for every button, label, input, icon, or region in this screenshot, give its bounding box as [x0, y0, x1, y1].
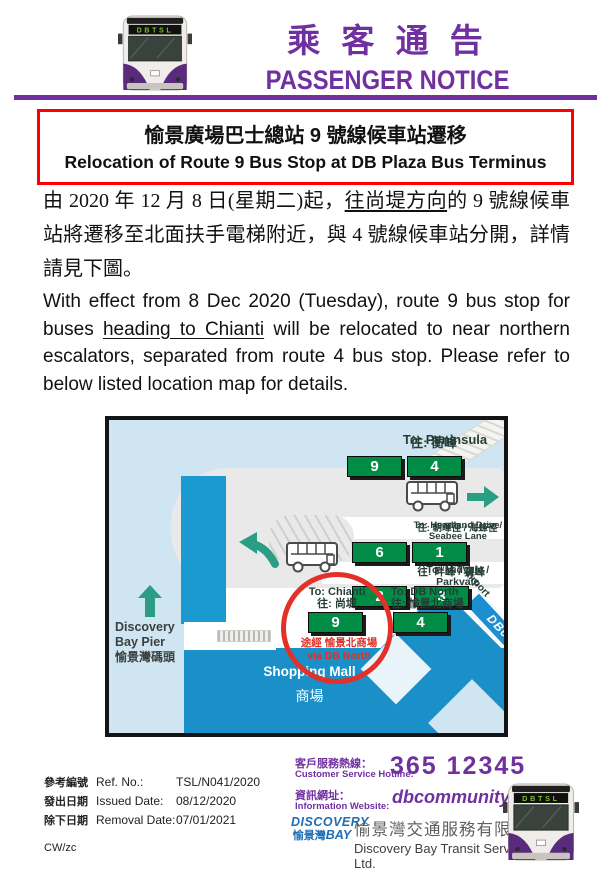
passenger-notice-page: DBTSL 乘 客 通 告 PASSENGER NOTICE 愉景廣場巴士總站 …: [0, 0, 611, 873]
bus-destination-text: DBTSL: [137, 28, 174, 35]
stop-label-cjk: 往: 愉景北商場: [391, 598, 496, 610]
route-badge-9: 9: [347, 456, 402, 477]
stop-label-cjk: 往: 朝暉徑 / 海蜂徑: [417, 520, 497, 534]
subject-box: 愉景廣場巴士總站 9 號線候車站遷移 Relocation of Route 9…: [37, 109, 574, 185]
stop-label-cjk: 往: 畔峰 / 寶峰: [417, 564, 485, 579]
removal-row: 除下日期 Removal Date: 07/01/2021: [44, 812, 294, 831]
purple-divider: [14, 95, 597, 100]
notice-title-cjk: 乘 客 通 告: [248, 14, 528, 62]
ref-label-cjk: 參考編號: [44, 774, 96, 790]
pier-line2: Bay Pier: [115, 635, 201, 650]
route-badge-4-dbnorth: 4: [393, 612, 448, 633]
cjk-text-pre: 由 2020 年 12 月 8 日(星期二)起，: [43, 190, 345, 212]
pier-arrow-up-icon: [137, 584, 163, 618]
via-db-north-note: 途經 愉景北商場 via DB North: [281, 637, 397, 663]
bus-side-icon: [285, 540, 341, 574]
logo-bay-text: BAY: [326, 828, 351, 842]
header-titles: 乘 客 通 告 PASSENGER NOTICE: [248, 14, 528, 96]
website-label-en: Information Website:: [295, 801, 389, 812]
issued-row: 發出日期 Issued Date: 08/12/2020: [44, 793, 294, 812]
issued-label-cjk: 發出日期: [44, 793, 96, 809]
note-cjk: 途經 愉景北商場: [281, 637, 397, 650]
stop-label-db-north: To: DB North 往: 愉景北商場: [391, 586, 496, 610]
map-pier-building: [181, 476, 226, 624]
issued-value: 08/12/2020: [176, 794, 236, 808]
highlight-circle: [281, 572, 393, 684]
bus-front-photo: DBTSL: [118, 12, 192, 94]
route-badge-1: 1: [412, 542, 467, 563]
subject-cjk: 愉景廣場巴士總站 9 號線候車站遷移: [44, 119, 567, 148]
issued-label-en: Issued Date:: [96, 794, 176, 808]
route-badge-4: 4: [407, 456, 462, 477]
bus-destination-text: DBTSL: [522, 794, 560, 803]
route-badge-6: 6: [352, 542, 407, 563]
map-footbridge: [217, 630, 271, 642]
pier-label: Discovery Bay Pier 愉景灣碼頭: [115, 620, 201, 665]
body-paragraph-cjk: 由 2020 年 12 月 8 日(星期二)起，往尚堤方向的 9 號線候車站將遷…: [43, 184, 570, 286]
logo-cjk-text: 愉景灣: [293, 830, 326, 842]
document-meta: 參考編號 Ref. No.: TSL/N041/2020 發出日期 Issued…: [44, 774, 294, 831]
pier-line1: Discovery: [115, 620, 201, 635]
ref-row: 參考編號 Ref. No.: TSL/N041/2020: [44, 774, 294, 793]
ref-label-en: Ref. No.:: [96, 775, 176, 789]
en-text-underlined: heading to Chianti: [103, 319, 264, 340]
stop-label-headland: To: Headland Drive/ Seabee Lane 往: 朝暉徑 /…: [325, 520, 504, 531]
direction-arrow-curved-icon: [237, 530, 281, 572]
removal-value: 07/01/2021: [176, 813, 236, 827]
ref-value: TSL/N041/2020: [176, 775, 260, 789]
removal-label-en: Removal Date:: [96, 813, 176, 827]
direction-arrow-right-icon: [465, 484, 501, 510]
mall-label-cjk: 商場: [217, 686, 402, 706]
notice-title-en: PASSENGER NOTICE: [266, 65, 510, 96]
stop-label-peninsula: To: Peninsula 往: 蘅峰: [309, 432, 504, 447]
removal-label-cjk: 除下日期: [44, 812, 96, 828]
note-en: via DB North: [281, 650, 397, 663]
cjk-text-underlined: 往尚堤方向: [345, 190, 447, 212]
discovery-bay-logo: DISCOVERY 愉景灣BAY: [291, 815, 353, 843]
pier-line3: 愉景灣碼頭: [115, 650, 201, 665]
stop-label-en: To: DB North: [391, 586, 496, 598]
bus-side-icon: [405, 480, 461, 512]
subject-en: Relocation of Route 9 Bus Stop at DB Pla…: [44, 152, 567, 173]
footer: 參考編號 Ref. No.: TSL/N041/2020 發出日期 Issued…: [0, 752, 611, 873]
location-map: To: Airport DB0 To: Peninsula 往: 蘅峰 9 4 …: [105, 416, 508, 737]
bus-front-photo: DBTSL: [503, 780, 579, 864]
author-initials: CW/zc: [44, 842, 76, 854]
body-paragraph-en: With effect from 8 Dec 2020 (Tuesday), r…: [43, 288, 570, 398]
hotline-number: 365 12345: [390, 752, 526, 781]
stop-label-cjk: 往: 蘅峰: [410, 432, 457, 451]
